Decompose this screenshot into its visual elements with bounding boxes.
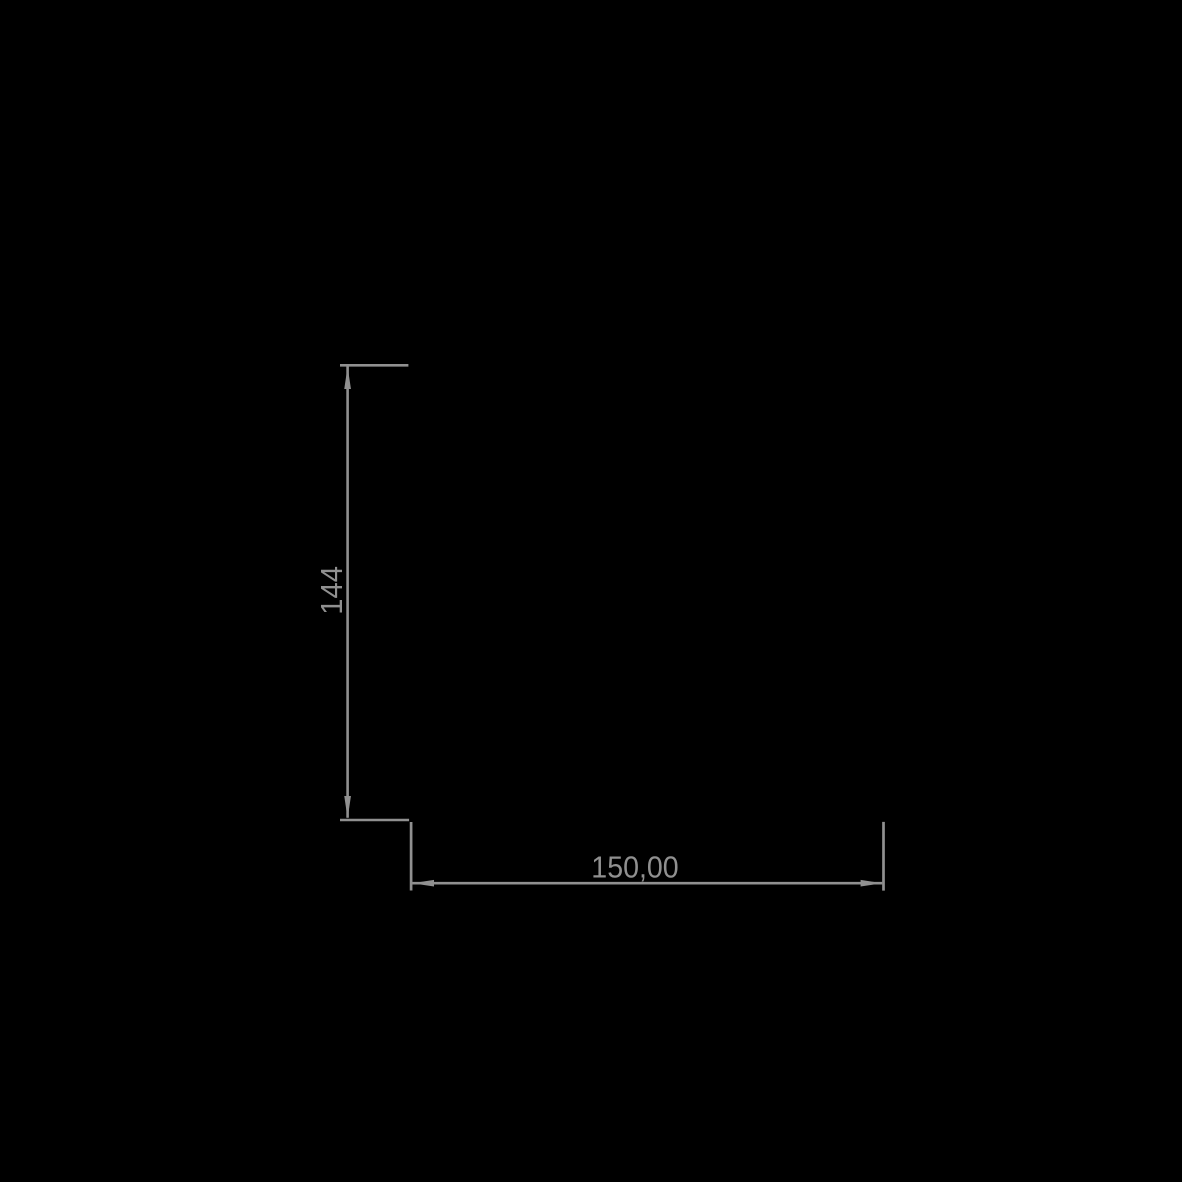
svg-text:150,00: 150,00: [591, 850, 678, 884]
svg-text:144: 144: [315, 566, 349, 615]
